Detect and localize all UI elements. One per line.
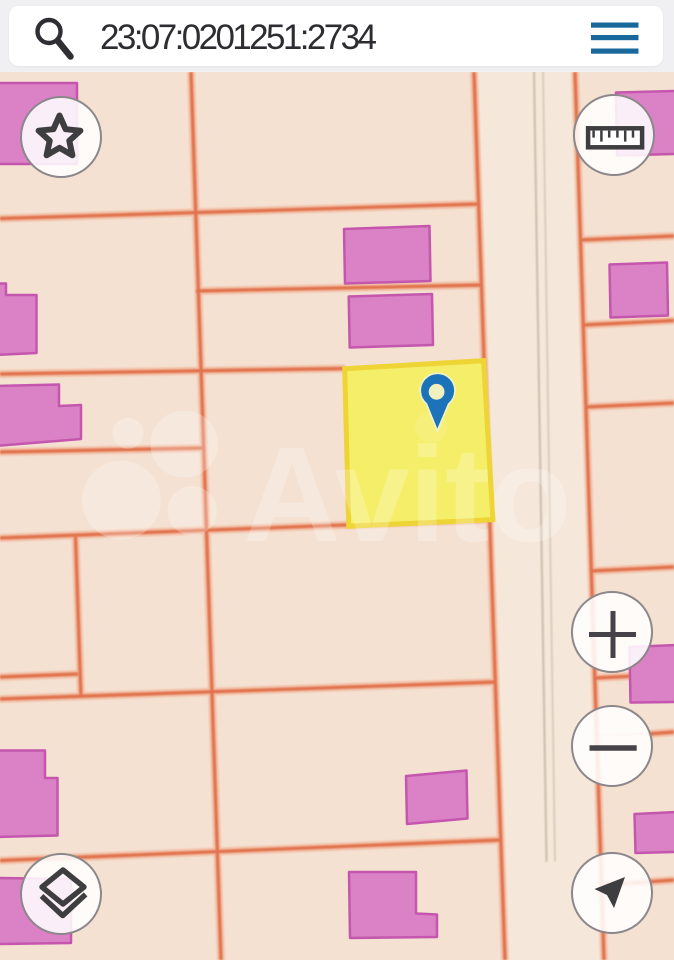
svg-text:Avito: Avito bbox=[243, 419, 571, 570]
